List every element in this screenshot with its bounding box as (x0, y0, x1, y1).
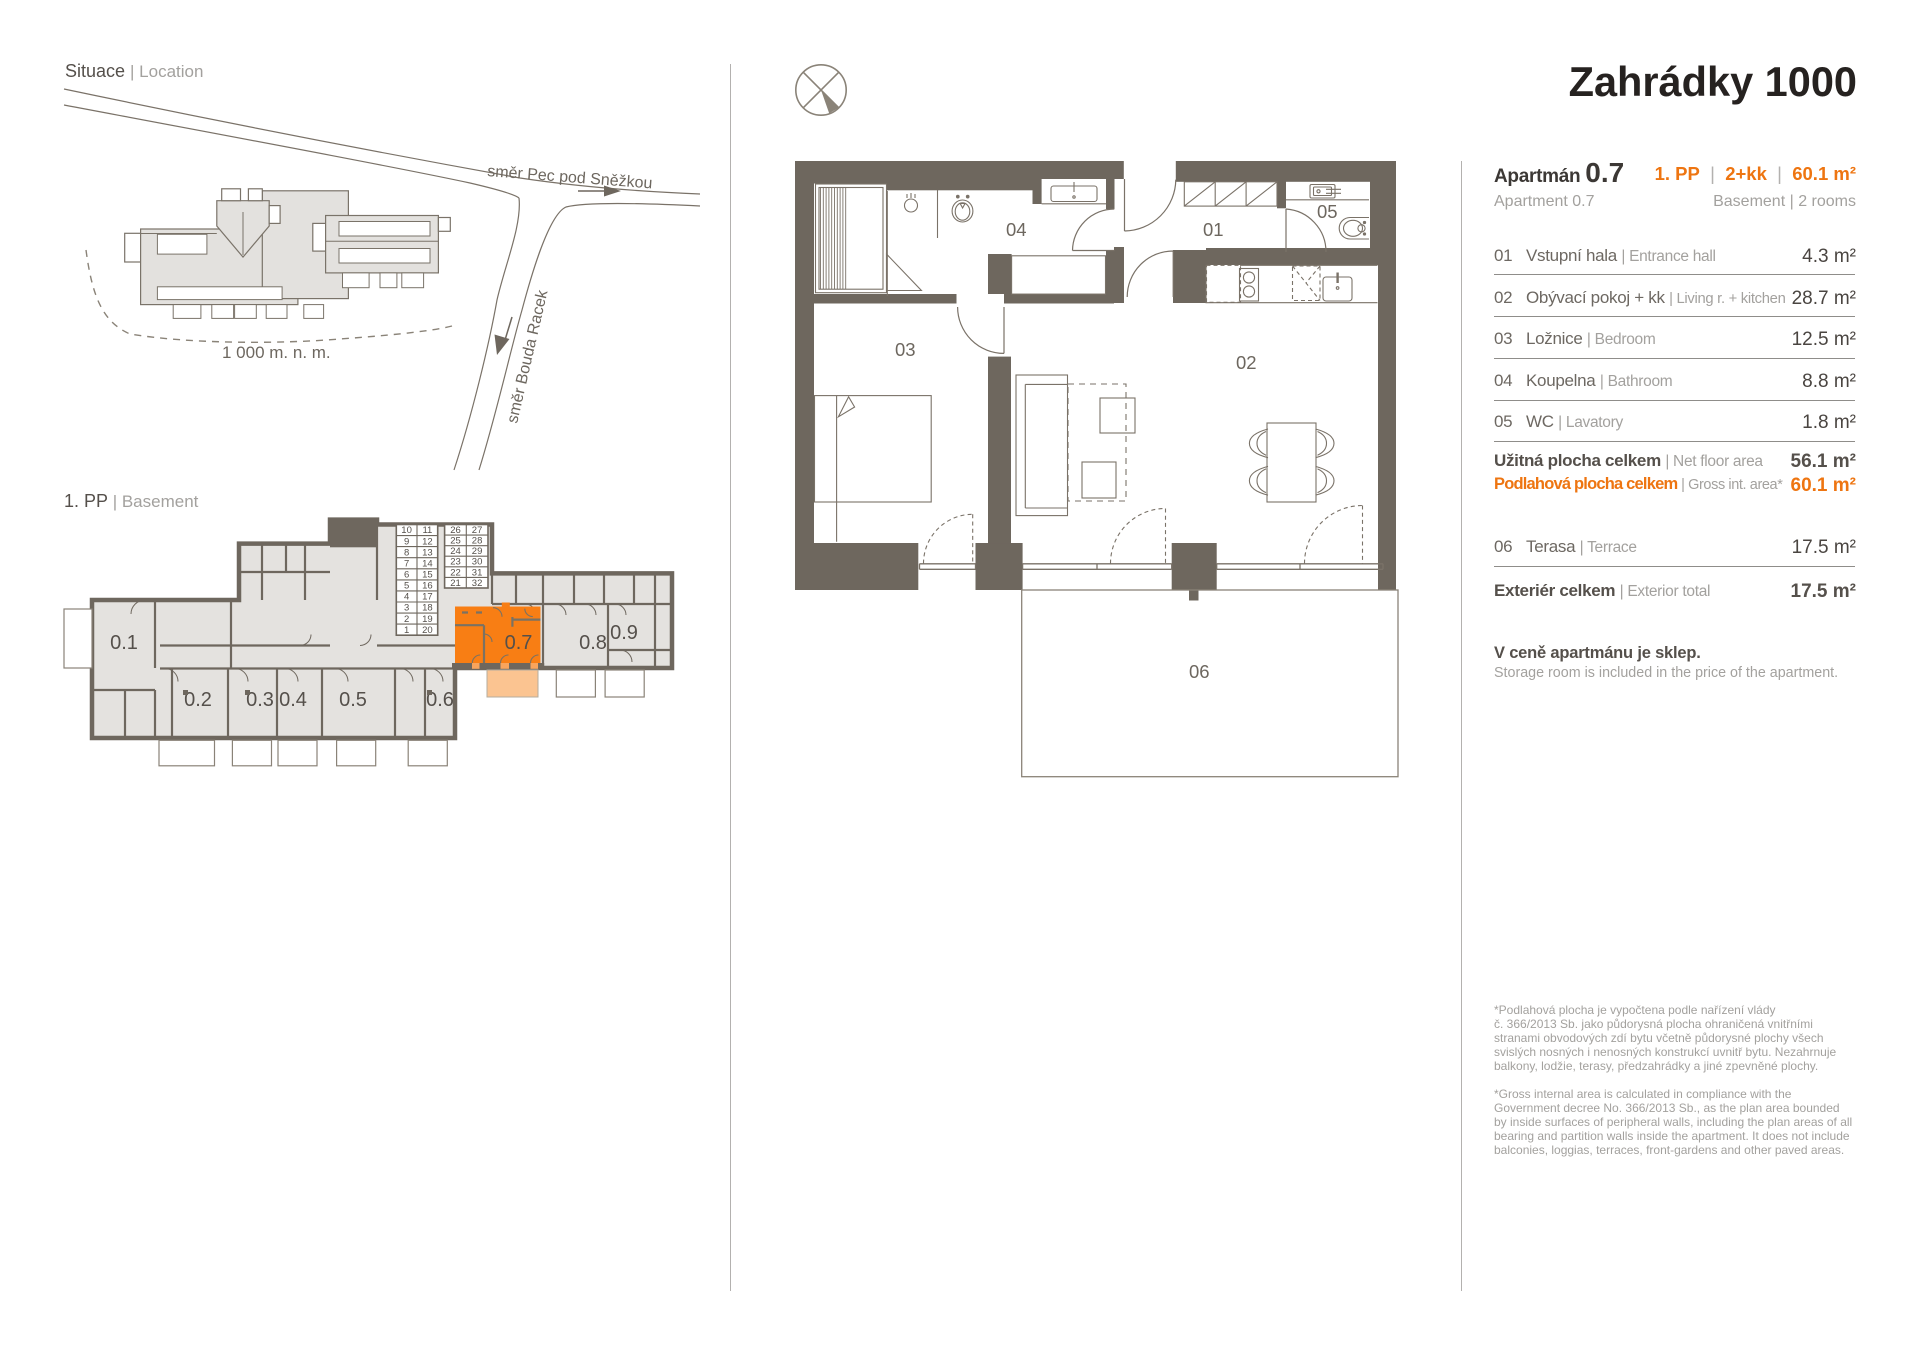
svg-text:1: 1 (404, 625, 409, 636)
svg-text:7: 7 (404, 558, 409, 569)
svg-text:3: 3 (404, 603, 409, 614)
svg-text:směr Bouda Racek: směr Bouda Racek (504, 288, 551, 425)
svg-text:19: 19 (422, 614, 433, 625)
svg-text:0.9: 0.9 (610, 622, 638, 644)
svg-text:0.1: 0.1 (110, 632, 138, 654)
svg-text:30: 30 (472, 557, 483, 568)
svg-text:04: 04 (1006, 219, 1027, 240)
svg-text:25: 25 (450, 536, 461, 547)
svg-text:11: 11 (422, 525, 432, 536)
svg-text:0.2: 0.2 (184, 689, 212, 711)
svg-text:02: 02 (1236, 352, 1257, 373)
svg-text:10: 10 (401, 525, 412, 536)
svg-text:27: 27 (472, 525, 483, 536)
svg-text:0.8: 0.8 (579, 632, 607, 654)
svg-text:5: 5 (404, 581, 409, 592)
svg-text:06: 06 (1189, 661, 1210, 682)
svg-text:03: 03 (895, 339, 916, 360)
svg-text:31: 31 (472, 567, 483, 578)
svg-text:1 000 m. n. m.: 1 000 m. n. m. (222, 343, 331, 362)
svg-text:26: 26 (450, 525, 461, 536)
svg-text:28: 28 (472, 536, 483, 547)
svg-text:14: 14 (422, 558, 433, 569)
svg-text:20: 20 (422, 625, 433, 636)
svg-text:22: 22 (450, 567, 461, 578)
svg-text:15: 15 (422, 570, 433, 581)
svg-text:4: 4 (404, 592, 409, 603)
svg-text:23: 23 (450, 557, 461, 568)
svg-text:17: 17 (422, 592, 433, 603)
svg-text:2: 2 (404, 614, 409, 625)
svg-text:18: 18 (422, 603, 433, 614)
svg-text:13: 13 (422, 547, 433, 558)
svg-text:12: 12 (422, 536, 433, 547)
svg-text:01: 01 (1203, 219, 1224, 240)
svg-text:0.5: 0.5 (339, 689, 367, 711)
svg-text:05: 05 (1317, 201, 1338, 222)
svg-text:0.7: 0.7 (505, 632, 533, 654)
svg-text:9: 9 (404, 536, 409, 547)
svg-text:32: 32 (472, 578, 483, 589)
svg-text:0.4: 0.4 (279, 689, 307, 711)
svg-text:6: 6 (404, 570, 409, 581)
svg-text:29: 29 (472, 546, 483, 557)
svg-text:21: 21 (450, 578, 461, 589)
svg-text:0.3: 0.3 (246, 689, 274, 711)
svg-text:24: 24 (450, 546, 461, 557)
svg-text:8: 8 (404, 547, 409, 558)
svg-text:16: 16 (422, 581, 433, 592)
svg-text:směr Pec pod Sněžkou: směr Pec pod Sněžkou (487, 163, 653, 192)
